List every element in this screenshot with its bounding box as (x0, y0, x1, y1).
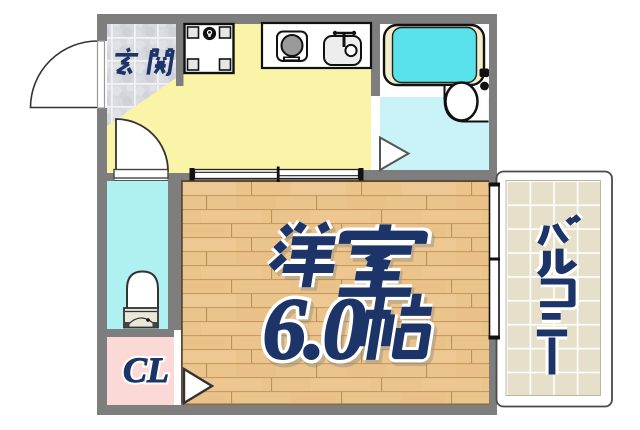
svg-text:CL: CL (123, 350, 169, 390)
